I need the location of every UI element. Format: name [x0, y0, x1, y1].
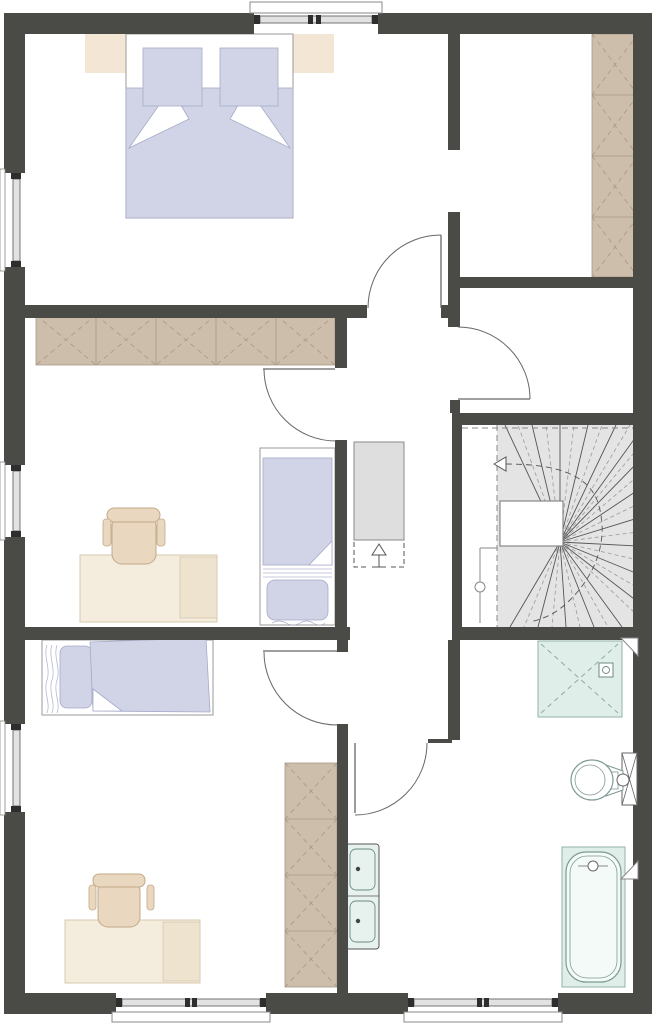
wall-middle-room-east-lower: [335, 440, 347, 627]
desk-return-bottom-room: [163, 922, 200, 981]
window-glass-left-1: [13, 179, 20, 261]
wall-outer-left-2: [4, 267, 25, 465]
window-sill-box: [0, 462, 5, 540]
wall-outer-top-right: [378, 13, 652, 34]
bathtub-faucet: [588, 861, 598, 871]
wall-bath-door-head: [428, 739, 452, 743]
office-chair-arm-left: [89, 885, 96, 910]
window-cap: [116, 998, 122, 1007]
wardrobe-dressing-room: [592, 34, 638, 277]
floor-plan-drawing: [0, 0, 655, 1024]
window-mullion: [484, 998, 489, 1007]
office-chair-seat: [112, 516, 156, 564]
desk-return-middle-room: [180, 557, 217, 618]
bathtub-rim: [566, 852, 621, 982]
window-cap: [11, 261, 21, 267]
shower-drain: [599, 663, 613, 677]
single-bed-duvet-middle: [263, 458, 332, 565]
office-chair-back: [107, 508, 160, 522]
wall-bedroom-south: [25, 305, 367, 318]
wall-outer-bottom-3: [558, 993, 652, 1014]
window-cap: [11, 724, 21, 730]
wall-stairs-north: [452, 413, 638, 425]
window-sill-box: [112, 1012, 270, 1022]
wall-middle-room-east-upper: [335, 313, 347, 368]
window-cap: [254, 15, 260, 24]
single-bed-pillow-bottom: [60, 646, 92, 708]
pillow-right: [220, 48, 278, 106]
washbasin-drain: [356, 919, 360, 923]
window-sill-box: [0, 721, 5, 815]
window-glass-left-2: [13, 471, 20, 531]
window-cap: [552, 998, 558, 1007]
window-mullion: [477, 998, 482, 1007]
wall-outer-left-1: [4, 13, 25, 173]
wall-rooms-divider: [25, 627, 350, 640]
wall-outer-top-left: [4, 13, 254, 34]
single-bed-pillow-middle: [267, 580, 328, 620]
nightstand-right: [293, 34, 334, 73]
window-cap: [408, 998, 414, 1007]
wall-bottom-room-east: [337, 724, 348, 993]
wall-dressing-south: [460, 277, 638, 288]
window-cap: [11, 173, 21, 179]
window-glass-bottom-2: [414, 999, 552, 1006]
toilet-flush-button: [617, 774, 629, 786]
window-sill-box: [0, 169, 5, 271]
office-chair-back: [93, 874, 145, 887]
window-mullion: [185, 998, 190, 1007]
office-chair-arm-right: [147, 885, 154, 910]
window-sill-box: [250, 2, 382, 13]
window-mullion: [308, 15, 313, 24]
wall-bottom-room-east-stub: [337, 640, 348, 652]
pillow-left: [143, 48, 202, 106]
window-cap: [11, 531, 21, 537]
wall-landing-stub: [450, 400, 460, 413]
wall-outer-bottom-2: [266, 993, 408, 1014]
wall-dressing-west-lower: [448, 212, 460, 327]
window-cap: [372, 15, 378, 24]
wall-outer-bottom-1: [4, 993, 116, 1014]
nightstand-left: [85, 34, 127, 73]
wall-dressing-west-upper: [448, 34, 460, 150]
office-chair-arm-left: [103, 519, 111, 546]
office-chair-arm-right: [157, 519, 165, 546]
window-glass-left-3: [13, 730, 20, 806]
wall-stairs-west: [452, 425, 462, 627]
staircase-void: [500, 501, 563, 546]
wall-outer-left-4: [4, 812, 25, 1014]
window-cap: [11, 806, 21, 812]
staircase-newel-post: [475, 582, 485, 592]
wall-stairs-south: [452, 627, 638, 640]
window-glass-bottom-1: [122, 999, 260, 1006]
toilet-bowl: [571, 760, 613, 800]
wall-bath-west: [448, 640, 460, 740]
window-mullion: [192, 998, 197, 1007]
window-mullion: [316, 15, 321, 24]
window-cap: [260, 998, 266, 1007]
washbasin-unit: [346, 844, 379, 949]
wall-outer-left-3: [4, 537, 25, 724]
washbasin-drain: [356, 867, 360, 871]
window-cap: [11, 465, 21, 471]
window-sill-box: [404, 1012, 562, 1022]
hallway-cabinet: [354, 442, 404, 540]
floor-plan-page: [0, 0, 655, 1024]
double-bed-duvet: [126, 88, 293, 218]
office-chair-seat: [98, 881, 140, 927]
